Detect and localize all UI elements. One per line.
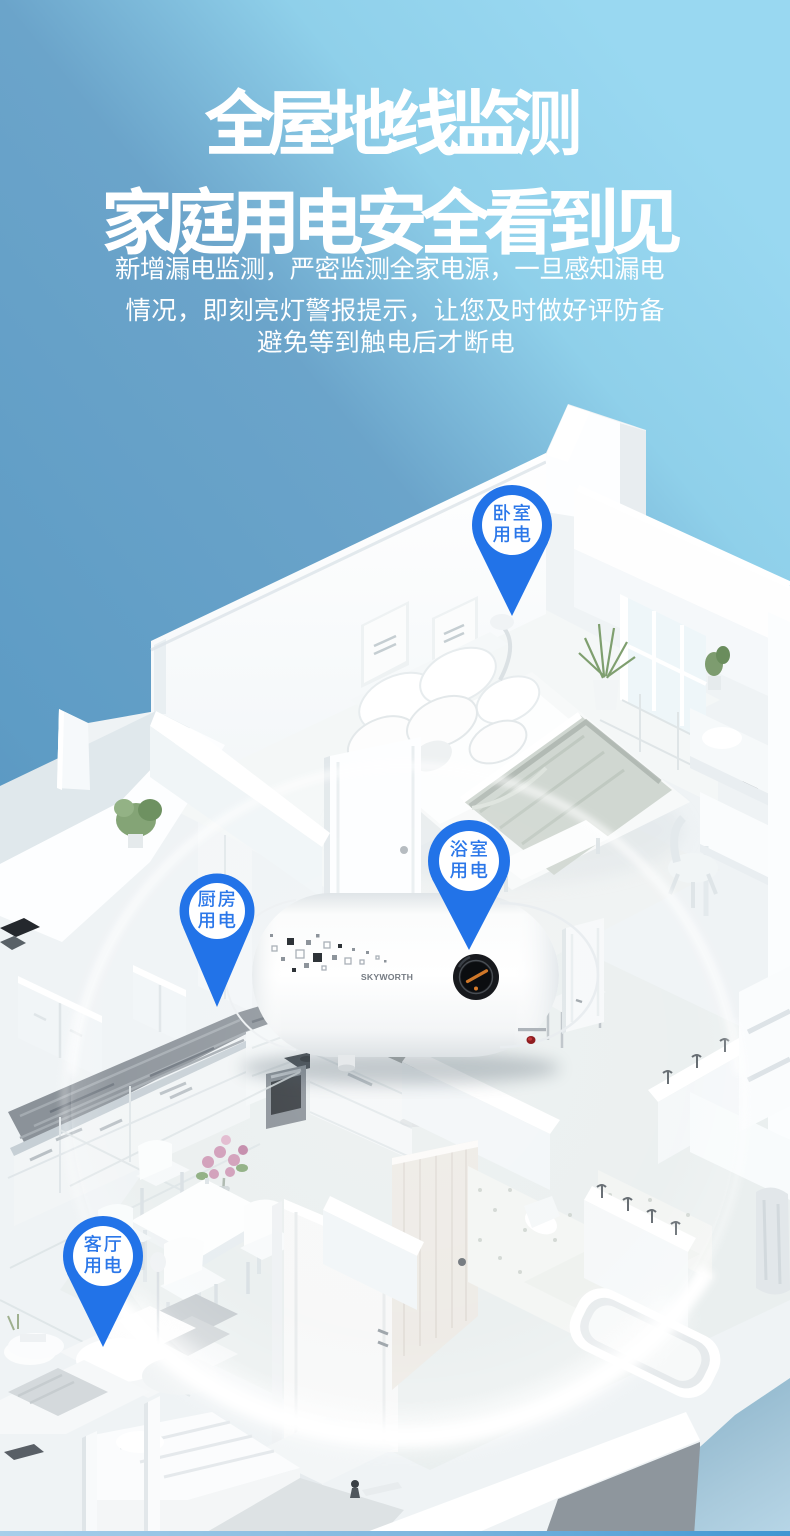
svg-text:SKYWORTH: SKYWORTH [361, 972, 413, 982]
